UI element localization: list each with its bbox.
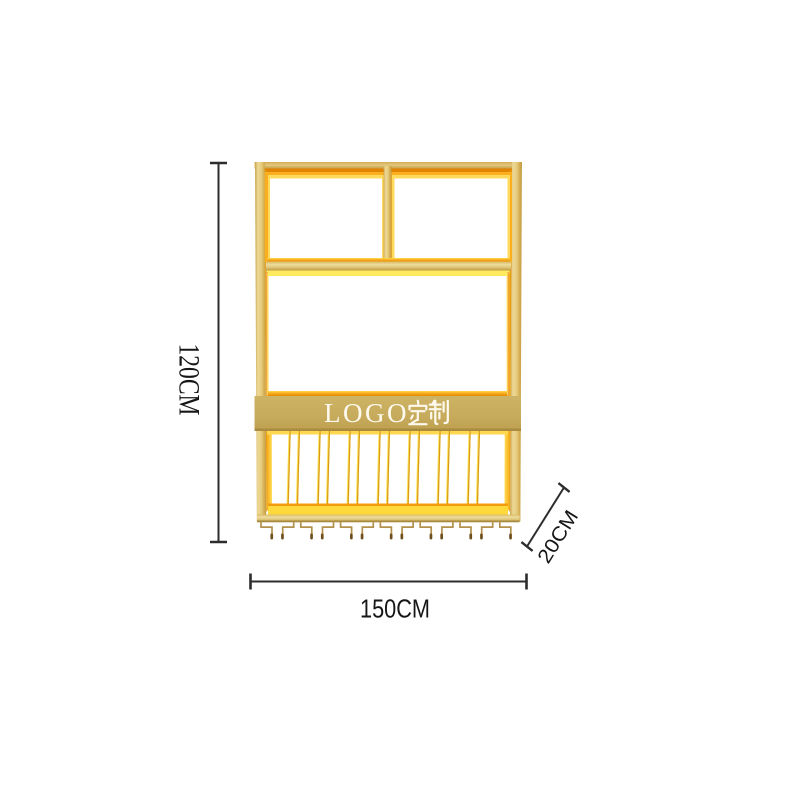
svg-text:120CM: 120CM (173, 344, 206, 416)
svg-text:150CM: 150CM (360, 596, 430, 624)
svg-text:LOGO: LOGO (324, 398, 409, 428)
